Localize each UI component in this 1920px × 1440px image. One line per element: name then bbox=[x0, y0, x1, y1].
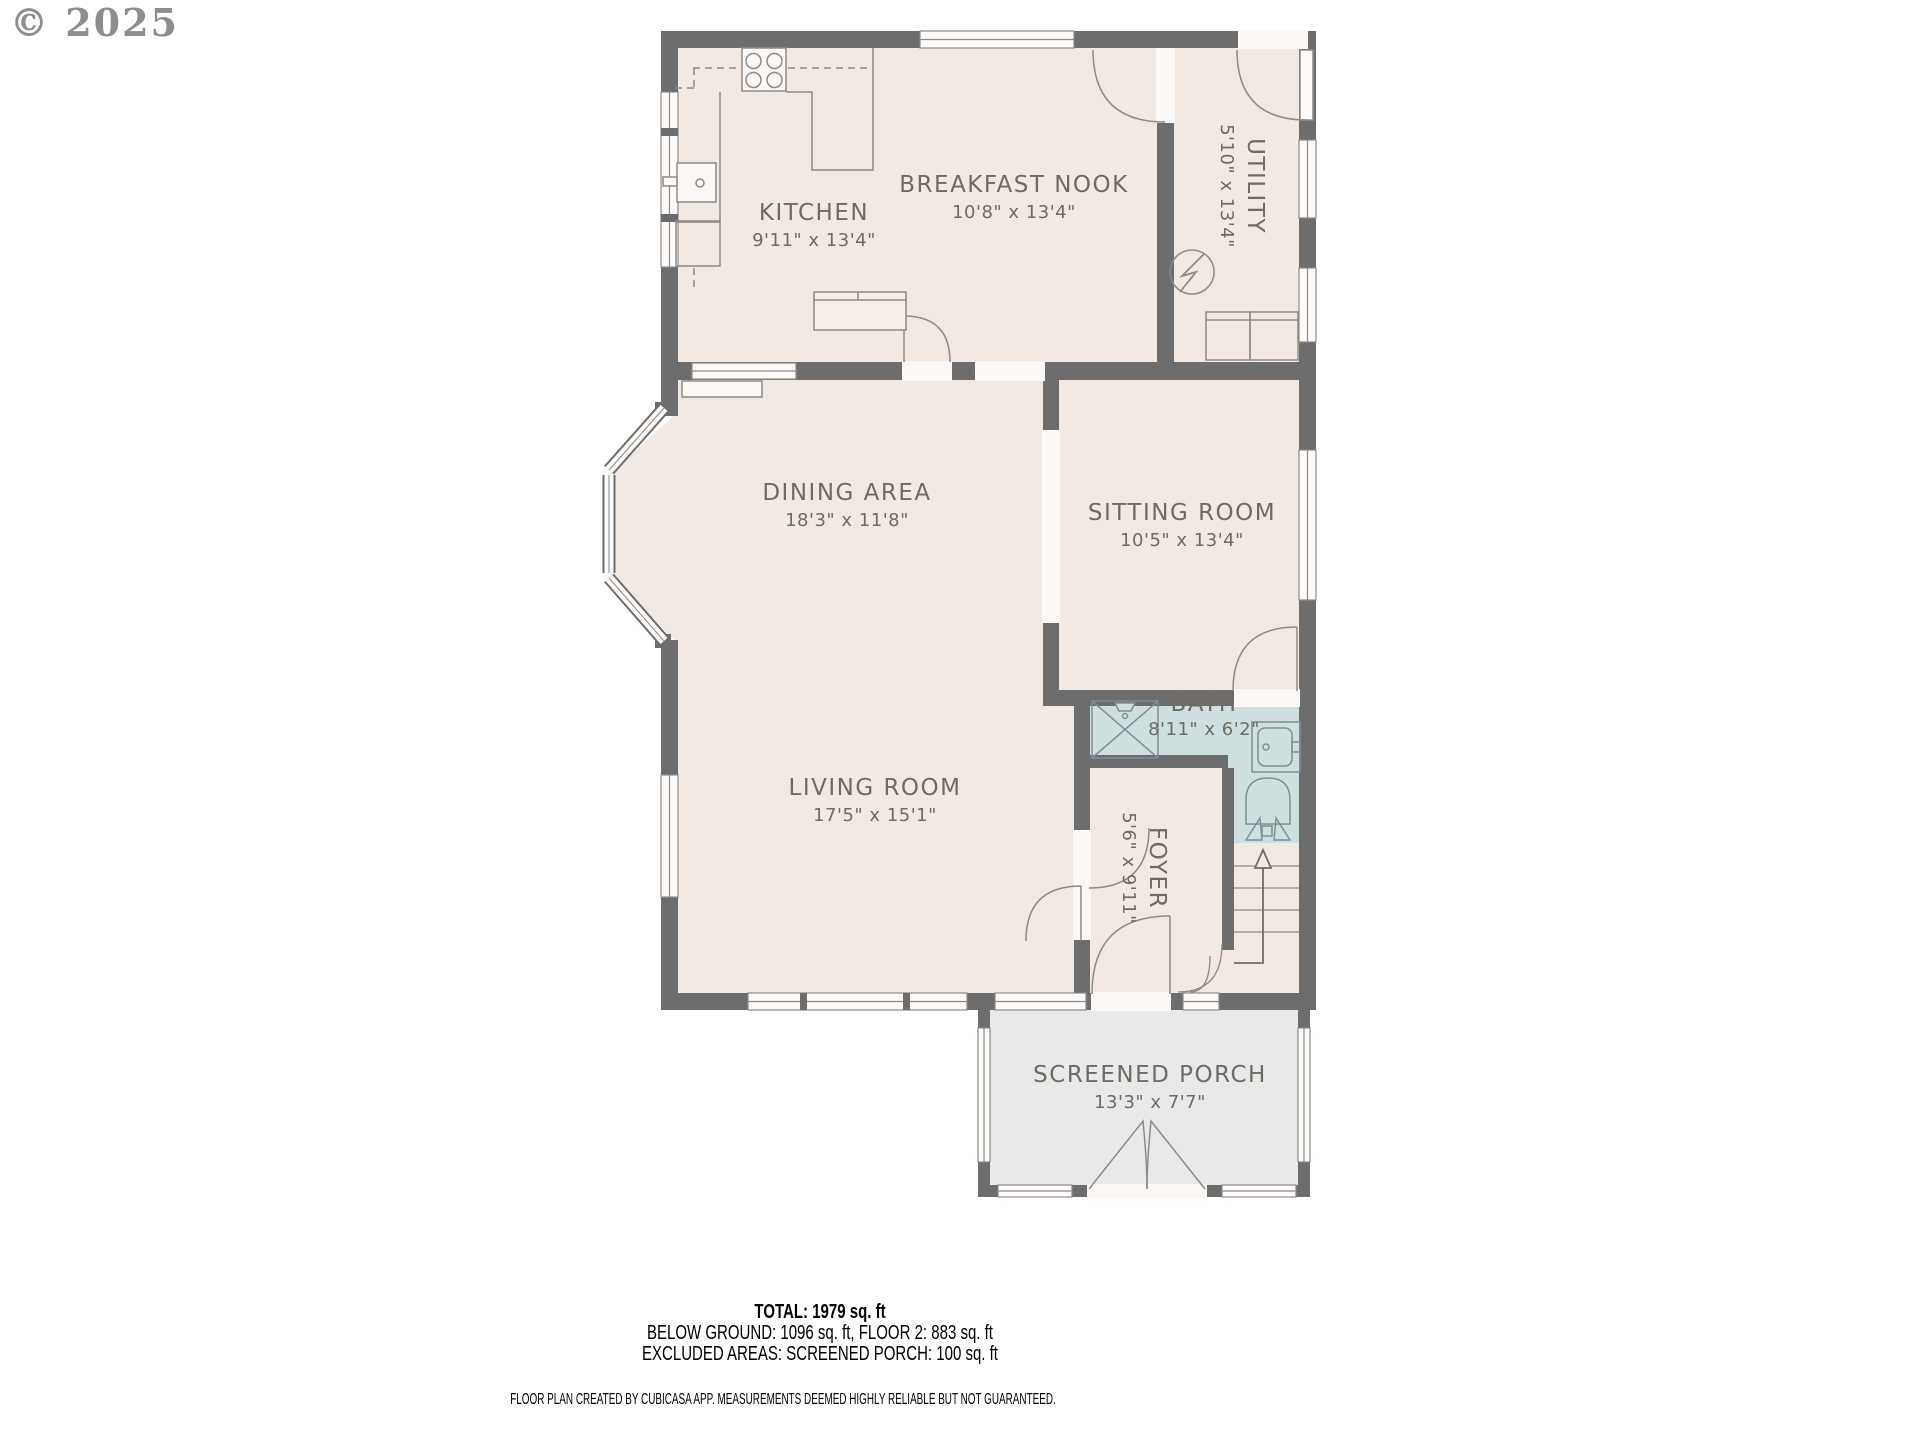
stove-icon bbox=[742, 48, 786, 91]
window-porch-bottom-2 bbox=[1222, 1185, 1296, 1197]
window-dining-top bbox=[692, 363, 796, 379]
room-name: DINING AREA bbox=[762, 480, 931, 506]
opening-dining-sitting bbox=[1042, 430, 1060, 623]
room-name: SCREENED PORCH bbox=[1033, 1062, 1267, 1088]
dining-living-floor bbox=[678, 380, 1043, 993]
room-name: FOYER bbox=[1144, 827, 1170, 909]
opening-bath-door bbox=[1234, 689, 1300, 707]
room-name: UTILITY bbox=[1242, 138, 1268, 234]
opening-living-foyer bbox=[1073, 830, 1091, 940]
opening-utility-ext bbox=[1238, 30, 1308, 49]
window-utility-right-1 bbox=[1299, 140, 1316, 218]
window-porch-left bbox=[978, 1028, 990, 1162]
room-dims: 10'5" x 13'4" bbox=[1120, 530, 1244, 551]
kitchen-island bbox=[814, 292, 906, 330]
floor-plan-page: © 2025 bbox=[0, 0, 1920, 1440]
summary-floors: BELOW GROUND: 1096 sq. ft, FLOOR 2: 883 … bbox=[642, 1323, 998, 1344]
window-porch-right bbox=[1298, 1028, 1310, 1162]
room-dims: 8'11" x 6'2" bbox=[1148, 719, 1260, 740]
room-dims: 10'8" x 13'4" bbox=[952, 202, 1076, 223]
room-dims: 13'3" x 7'7" bbox=[1094, 1092, 1206, 1113]
window-bottom-3 bbox=[1183, 993, 1219, 1010]
window-living-left bbox=[661, 775, 678, 897]
floor-plan-svg: KITCHEN 9'11" x 13'4" BREAKFAST NOOK 10'… bbox=[0, 0, 1920, 1440]
room-label-living-room: LIVING ROOM 17'5" x 15'1" bbox=[789, 775, 962, 826]
room-dims: 5'6" x 9'11" bbox=[1118, 812, 1139, 924]
wall-foyer-stairs bbox=[1222, 768, 1234, 950]
room-name: SITTING ROOM bbox=[1088, 500, 1276, 526]
summary-total: TOTAL: 1979 sq. ft bbox=[642, 1302, 998, 1323]
room-name: KITCHEN bbox=[759, 200, 869, 226]
room-dims: 17'5" x 15'1" bbox=[813, 805, 937, 826]
opening-kitchen-door bbox=[902, 361, 952, 381]
window-porch-bottom-1 bbox=[998, 1185, 1072, 1197]
room-name: BATH bbox=[1170, 691, 1237, 717]
room-label-kitchen: KITCHEN 9'11" x 13'4" bbox=[752, 200, 876, 251]
window-utility-right-2 bbox=[1299, 268, 1316, 342]
opening-front-door bbox=[1091, 992, 1171, 1011]
room-dims: 18'3" x 11'8" bbox=[785, 510, 909, 531]
room-name: LIVING ROOM bbox=[789, 775, 962, 801]
window-bottom-2 bbox=[995, 993, 1086, 1010]
dining-ledge bbox=[682, 381, 762, 397]
room-label-dining-area: DINING AREA 18'3" x 11'8" bbox=[762, 480, 931, 531]
opening-nook-utility bbox=[1156, 48, 1175, 123]
room-dims: 5'10" x 13'4" bbox=[1216, 124, 1237, 248]
window-sitting-right bbox=[1299, 450, 1316, 600]
wall-bath-foyer bbox=[1090, 755, 1228, 768]
window-nook-top bbox=[920, 31, 1074, 48]
living-floor-ext bbox=[1043, 690, 1074, 993]
opening-nook-dining bbox=[975, 361, 1045, 381]
disclaimer-text: FLOOR PLAN CREATED BY CUBICASA APP. MEAS… bbox=[510, 1391, 1056, 1409]
window-living-bottom bbox=[748, 993, 967, 1010]
kitchen-nook-floor bbox=[678, 48, 1158, 362]
disclaimer-footer: FLOOR PLAN CREATED BY CUBICASA APP. MEAS… bbox=[343, 1391, 1223, 1409]
summary-excluded: EXCLUDED AREAS: SCREENED PORCH: 100 sq. … bbox=[642, 1344, 998, 1365]
area-summary: TOTAL: 1979 sq. ft BELOW GROUND: 1096 sq… bbox=[583, 1302, 1058, 1365]
room-name: BREAKFAST NOOK bbox=[899, 172, 1128, 198]
room-dims: 9'11" x 13'4" bbox=[752, 230, 876, 251]
